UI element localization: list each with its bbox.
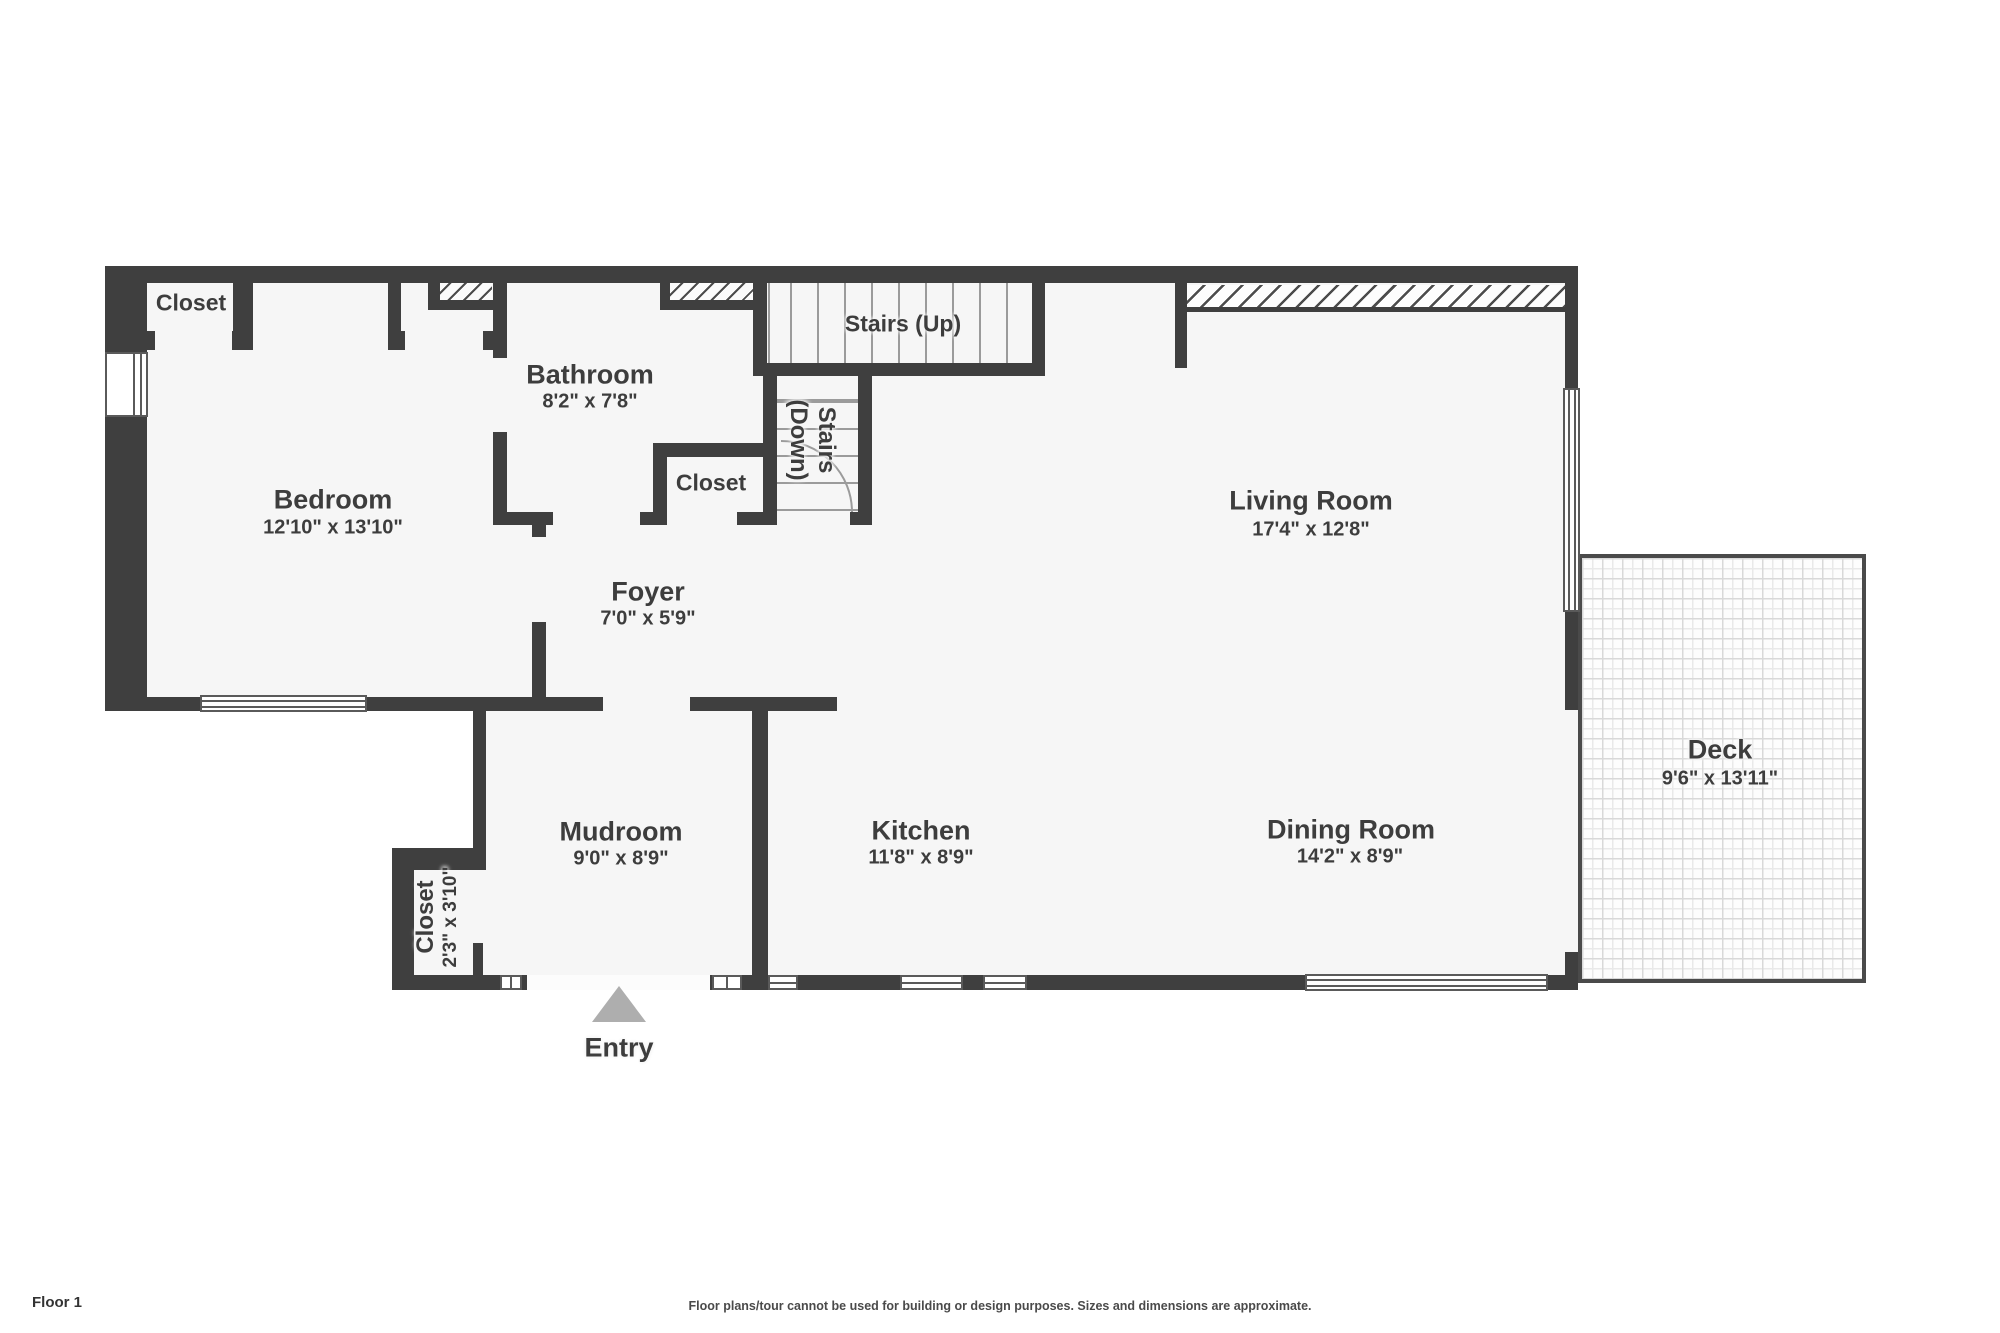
window-kitchen-1 — [900, 975, 963, 990]
wall-living-stub — [1175, 283, 1187, 368]
label-stairs-down-line2: (Down) — [784, 399, 812, 480]
wall-mudroom-kitchen — [752, 697, 768, 990]
wall-mudroom-left — [473, 697, 486, 870]
door-stairs-down — [777, 512, 850, 525]
disclaimer-text: Floor plans/tour cannot be used for buil… — [688, 1299, 1311, 1313]
wall-mudroom-closet-left — [392, 848, 414, 988]
opening-foyer-mudroom — [603, 697, 690, 711]
entry-sidelight-right — [712, 975, 742, 990]
rail-hatch-border — [1187, 307, 1565, 312]
label-bathroom-dims: 8'2" x 7'8" — [542, 391, 637, 414]
label-bathroom: Bathroom — [526, 360, 654, 391]
door-swing-arc — [0, 0, 2000, 1333]
label-stairs-up: Stairs (Up) — [845, 311, 961, 338]
door-bathroom-left — [493, 358, 507, 432]
wall-hall-closet-left — [653, 443, 667, 513]
door-hall-closet — [667, 512, 737, 525]
window-bedroom-left — [105, 352, 148, 417]
label-foyer-dims: 7'0" x 5'9" — [600, 608, 695, 631]
label-deck-dims: 9'6" x 13'11" — [1662, 768, 1778, 791]
label-bedroom-closet: Closet — [156, 290, 226, 317]
door-bathroom — [553, 512, 640, 525]
label-kitchen-dims: 11'8" x 8'9" — [868, 847, 973, 870]
label-deck: Deck — [1688, 735, 1753, 766]
entry-sidelight-left — [500, 975, 522, 990]
label-dining-room-dims: 14'2" x 8'9" — [1297, 846, 1403, 869]
wall-hall-closet-top — [653, 443, 777, 457]
window-dining-bottom — [1305, 974, 1548, 991]
label-mudroom-closet-name: Closet — [412, 866, 440, 967]
chimney-hatch-mid — [670, 281, 753, 301]
label-stairs-down: Stairs (Down) — [784, 399, 840, 480]
label-mudroom-dims: 9'0" x 8'9" — [573, 848, 668, 871]
rail-hatch-band — [1187, 285, 1565, 307]
window-living-right — [1563, 388, 1580, 612]
label-mudroom-closet: Closet 2'3" x 3'10" — [412, 866, 462, 967]
label-foyer: Foyer — [611, 577, 685, 608]
label-kitchen: Kitchen — [871, 816, 970, 847]
floor-number-label: Floor 1 — [32, 1294, 82, 1311]
wall-top — [105, 266, 1578, 283]
wall-chimney-bottom-frame-b — [660, 300, 765, 310]
label-stairs-down-line1: Stairs — [812, 399, 840, 480]
door-mudroom-closet — [473, 870, 483, 943]
window-kitchen-corner — [768, 975, 798, 990]
wall-stairs-down-left — [763, 376, 777, 513]
door-bedroom — [405, 331, 483, 350]
window-bedroom-bottom — [200, 695, 367, 712]
label-living-room: Living Room — [1229, 486, 1393, 517]
label-living-room-dims: 17'4" x 12'8" — [1252, 519, 1369, 542]
entry-arrow-icon — [592, 986, 646, 1022]
label-bedroom-dims: 12'10" x 13'10" — [263, 517, 403, 540]
label-mudroom: Mudroom — [560, 817, 683, 848]
window-kitchen-2 — [983, 975, 1027, 990]
label-mudroom-closet-dims: 2'3" x 3'10" — [440, 866, 462, 967]
label-hall-closet: Closet — [676, 470, 746, 497]
wall-stairs-down-right — [858, 376, 872, 523]
door-bedroom-foyer — [532, 537, 546, 622]
wall-stairs-right — [1032, 283, 1045, 363]
floorplan-canvas: Bedroom 12'10" x 13'10" Closet Bathroom … — [0, 0, 2000, 1333]
label-bedroom: Bedroom — [274, 485, 393, 516]
label-dining-room: Dining Room — [1267, 815, 1435, 846]
label-entry: Entry — [584, 1033, 653, 1064]
wall-chimney-bottom-frame-a — [428, 300, 503, 310]
door-bedroom-closet — [155, 331, 232, 350]
opening-deck — [1565, 710, 1578, 952]
wall-stairs-bottom — [753, 363, 1045, 376]
wall-bedroom-closet-right — [233, 266, 253, 350]
